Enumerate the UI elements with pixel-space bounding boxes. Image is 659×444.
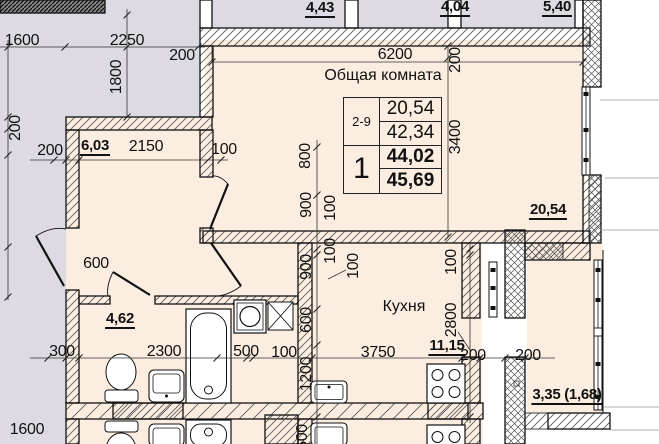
dim-3750-kitchen: 3750 (361, 345, 395, 361)
dim-100-kitchen-right: 100 (444, 249, 460, 275)
dim-300-bottom: 300 (49, 344, 75, 360)
area-kitchen: 11,15 (428, 338, 465, 356)
dim-100-chain-b: 100 (323, 238, 339, 264)
washing-machine-fixture (234, 300, 266, 333)
dim-200-hall-left: 200 (37, 143, 63, 159)
sink-fixture (149, 370, 184, 402)
area-living: 20,54 (529, 202, 567, 220)
floor-plan: 1600 2250 200 200 2150 100 6200 600 300 … (0, 0, 659, 444)
dim-2250-top: 2250 (110, 33, 144, 49)
apartment-stamp-table: 2-9 20,54 42,34 1 44,02 45,69 (343, 97, 442, 194)
toilet-fixture (105, 354, 138, 402)
dim-1800-left: 1800 (109, 60, 125, 94)
dim-900-chain-lower: 900 (299, 254, 315, 280)
stamp-total-area-with-balcony: 45,69 (380, 169, 441, 193)
stamp-living-area: 20,54 (380, 98, 441, 122)
vent-shaft-symbol (268, 302, 293, 330)
dim-3400-living: 3400 (448, 120, 464, 154)
dim-600-chain-mid: 600 (299, 307, 315, 333)
dim-600-bath-door: 600 (83, 256, 109, 272)
area-neighbor-top-3: 5,40 (542, 0, 572, 17)
bathtub-fixture (186, 309, 231, 403)
dim-100-chain-c: 100 (346, 253, 362, 279)
dim-200-balcony-right: 200 (515, 348, 541, 364)
living-window (582, 87, 590, 175)
area-balcony: 3,35 (1,68) (531, 387, 602, 405)
stamp-room-count: 1 (344, 146, 380, 194)
dim-100-hall-right: 100 (211, 142, 237, 158)
kitchen-window (489, 262, 497, 317)
dim-1600-top: 1600 (5, 33, 39, 49)
dim-600-chain-bottom: 600 (295, 424, 311, 444)
dim-100-bottom: 100 (271, 345, 297, 361)
dim-1200-chain: 1200 (299, 357, 315, 391)
dim-200-left-edge: 200 (8, 115, 24, 141)
dim-200-living-top: 200 (448, 47, 464, 73)
dim-800-chain: 800 (298, 143, 314, 169)
area-hallway: 6,03 (80, 138, 110, 156)
kitchen-sink-fixture (311, 381, 347, 403)
dim-2800-kitchen: 2800 (444, 303, 460, 337)
stamp-total-area: 44,02 (380, 146, 441, 170)
dim-2150-hall: 2150 (129, 139, 163, 155)
room-name-kitchen: Кухня (383, 299, 426, 315)
area-neighbor-top-1: 4,43 (305, 0, 335, 18)
dim-1600-bottom: 1600 (10, 422, 44, 438)
dim-100-chain-a: 100 (323, 195, 339, 221)
dim-900-chain-upper: 900 (299, 192, 315, 218)
dim-500-bottom: 500 (233, 344, 259, 360)
room-name-living: Общая комната (324, 68, 441, 84)
area-neighbor-top-2: 4,04 (440, 0, 470, 17)
dim-2300-bath: 2300 (147, 344, 181, 360)
dim-6200-living: 6200 (378, 47, 412, 63)
stove-fixture (427, 364, 465, 403)
stamp-floor-range: 2-9 (344, 98, 380, 146)
dim-200-top-wall: 200 (169, 48, 195, 64)
stamp-usable-area: 42,34 (380, 122, 441, 146)
area-bathroom: 4,62 (105, 311, 135, 329)
